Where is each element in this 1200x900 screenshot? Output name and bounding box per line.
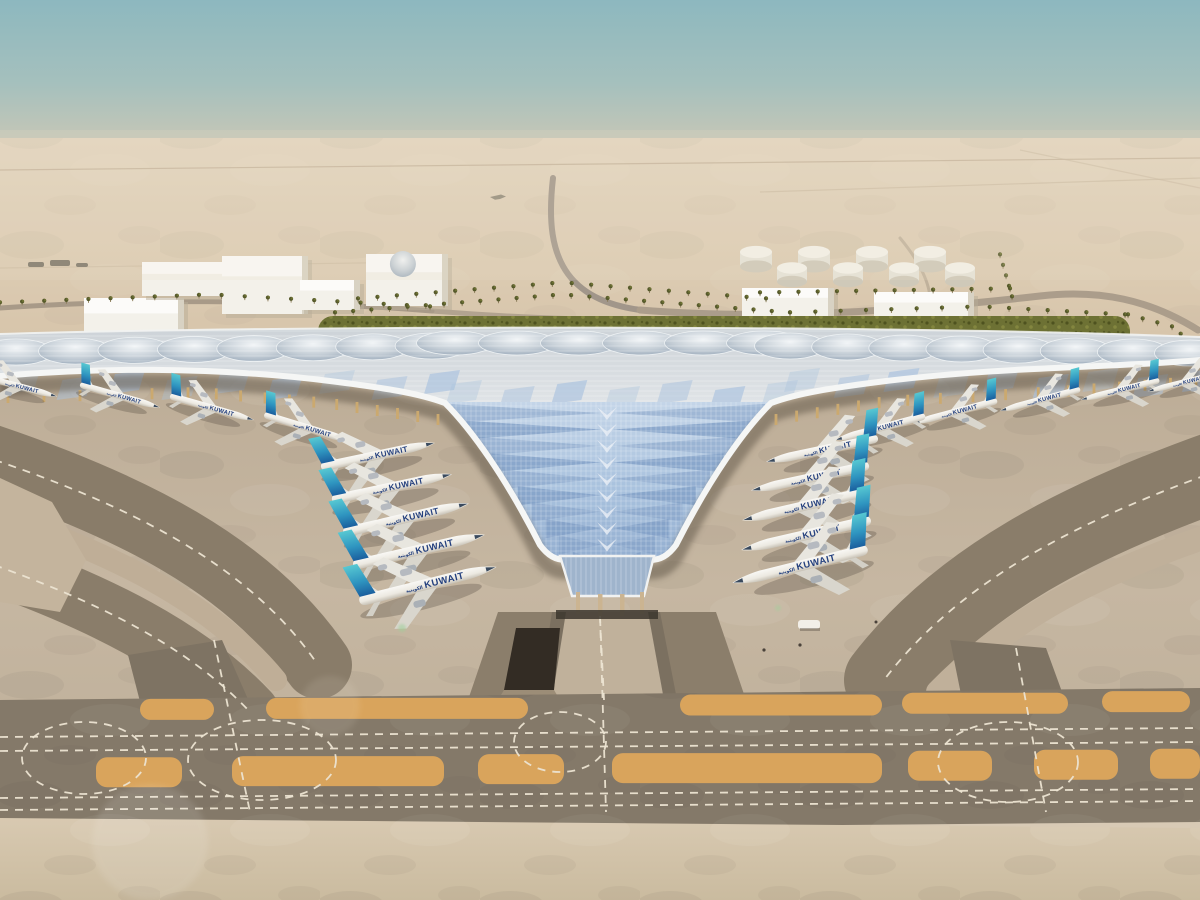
blast-pad (1102, 691, 1190, 712)
entrance-shadow (556, 610, 658, 619)
colonnade-column (795, 411, 798, 422)
airport-aerial-rendering: الكويتيةKUWAIT (0, 0, 1200, 900)
rendering-canvas: الكويتيةKUWAIT (0, 0, 1200, 900)
colonnade-column (187, 387, 190, 398)
colonnade-column (151, 388, 154, 399)
blast-pad (902, 693, 1068, 714)
blast-pad (1150, 749, 1200, 779)
colonnade-column (836, 404, 839, 415)
blast-pad (478, 754, 564, 784)
blast-pad (612, 753, 882, 783)
blast-pad (96, 757, 182, 787)
colonnade-column (264, 393, 267, 404)
colonnade-column (775, 414, 778, 425)
colonnade-column (396, 408, 399, 419)
colonnade-column (239, 390, 242, 401)
colonnade-column (1093, 384, 1096, 395)
colonnade-column (312, 397, 315, 408)
colonnade-column (437, 414, 440, 425)
colonnade-column (816, 407, 819, 418)
blast-pad (140, 699, 214, 720)
colonnade-column (215, 388, 218, 399)
colonnade-column (906, 395, 909, 406)
colonnade-column (878, 397, 881, 408)
colonnade-column (356, 402, 359, 413)
facility-building (300, 280, 364, 314)
colonnade-column (939, 393, 942, 404)
colonnade-column (376, 405, 379, 416)
colonnade-column (416, 411, 419, 422)
colonnade-column (857, 401, 860, 412)
blast-pad (1034, 750, 1118, 780)
colonnade-column (1004, 389, 1007, 400)
atmospheric-haze (0, 130, 1200, 280)
colonnade-column (335, 399, 338, 410)
blast-pad (232, 756, 444, 786)
blast-pad (908, 751, 992, 781)
blast-pad (680, 695, 882, 716)
